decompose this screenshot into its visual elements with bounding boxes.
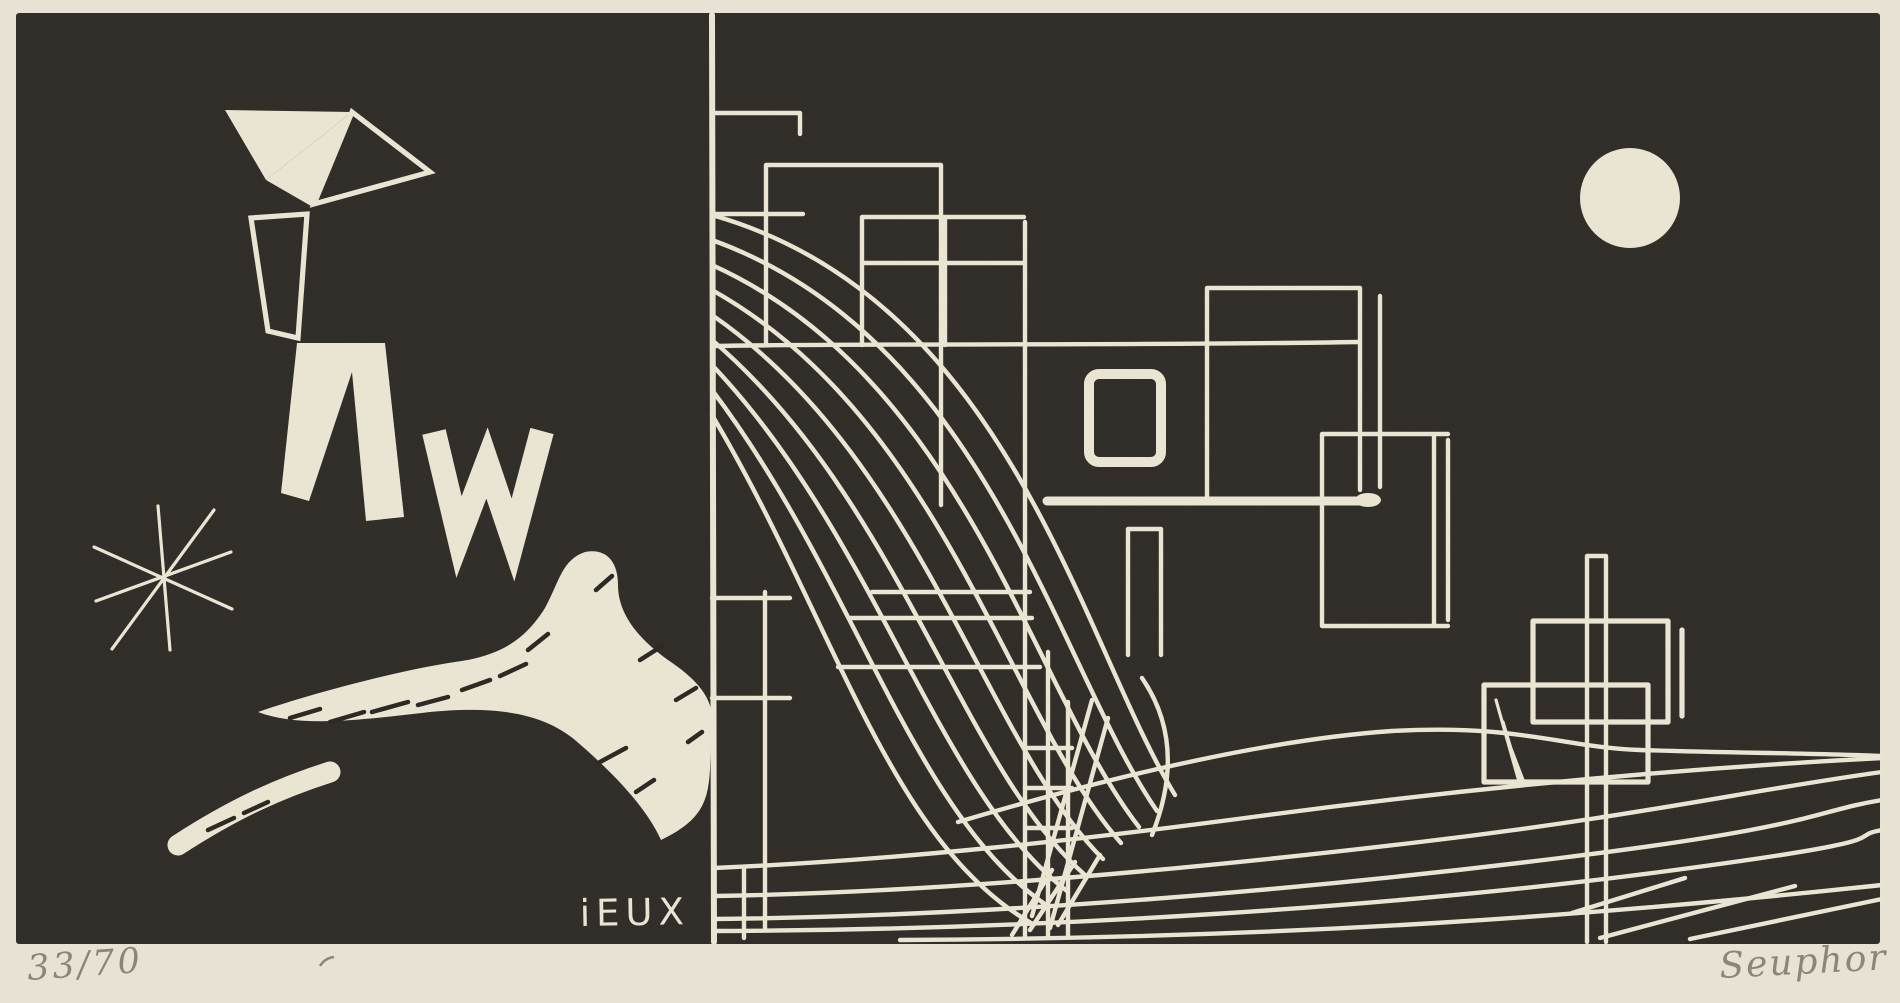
signature: Seuphor	[1718, 937, 1888, 987]
inscription-text: iEUX	[579, 890, 690, 935]
woodcut-print: iEUX	[0, 0, 1900, 1003]
line-end-blob	[1355, 493, 1381, 507]
artwork-photo: iEUX	[0, 0, 1900, 1003]
panel-divider-line	[712, 15, 714, 942]
moon-shape	[1580, 148, 1680, 248]
pencil-mark	[320, 957, 334, 966]
edition-number: 33/70	[26, 941, 144, 989]
